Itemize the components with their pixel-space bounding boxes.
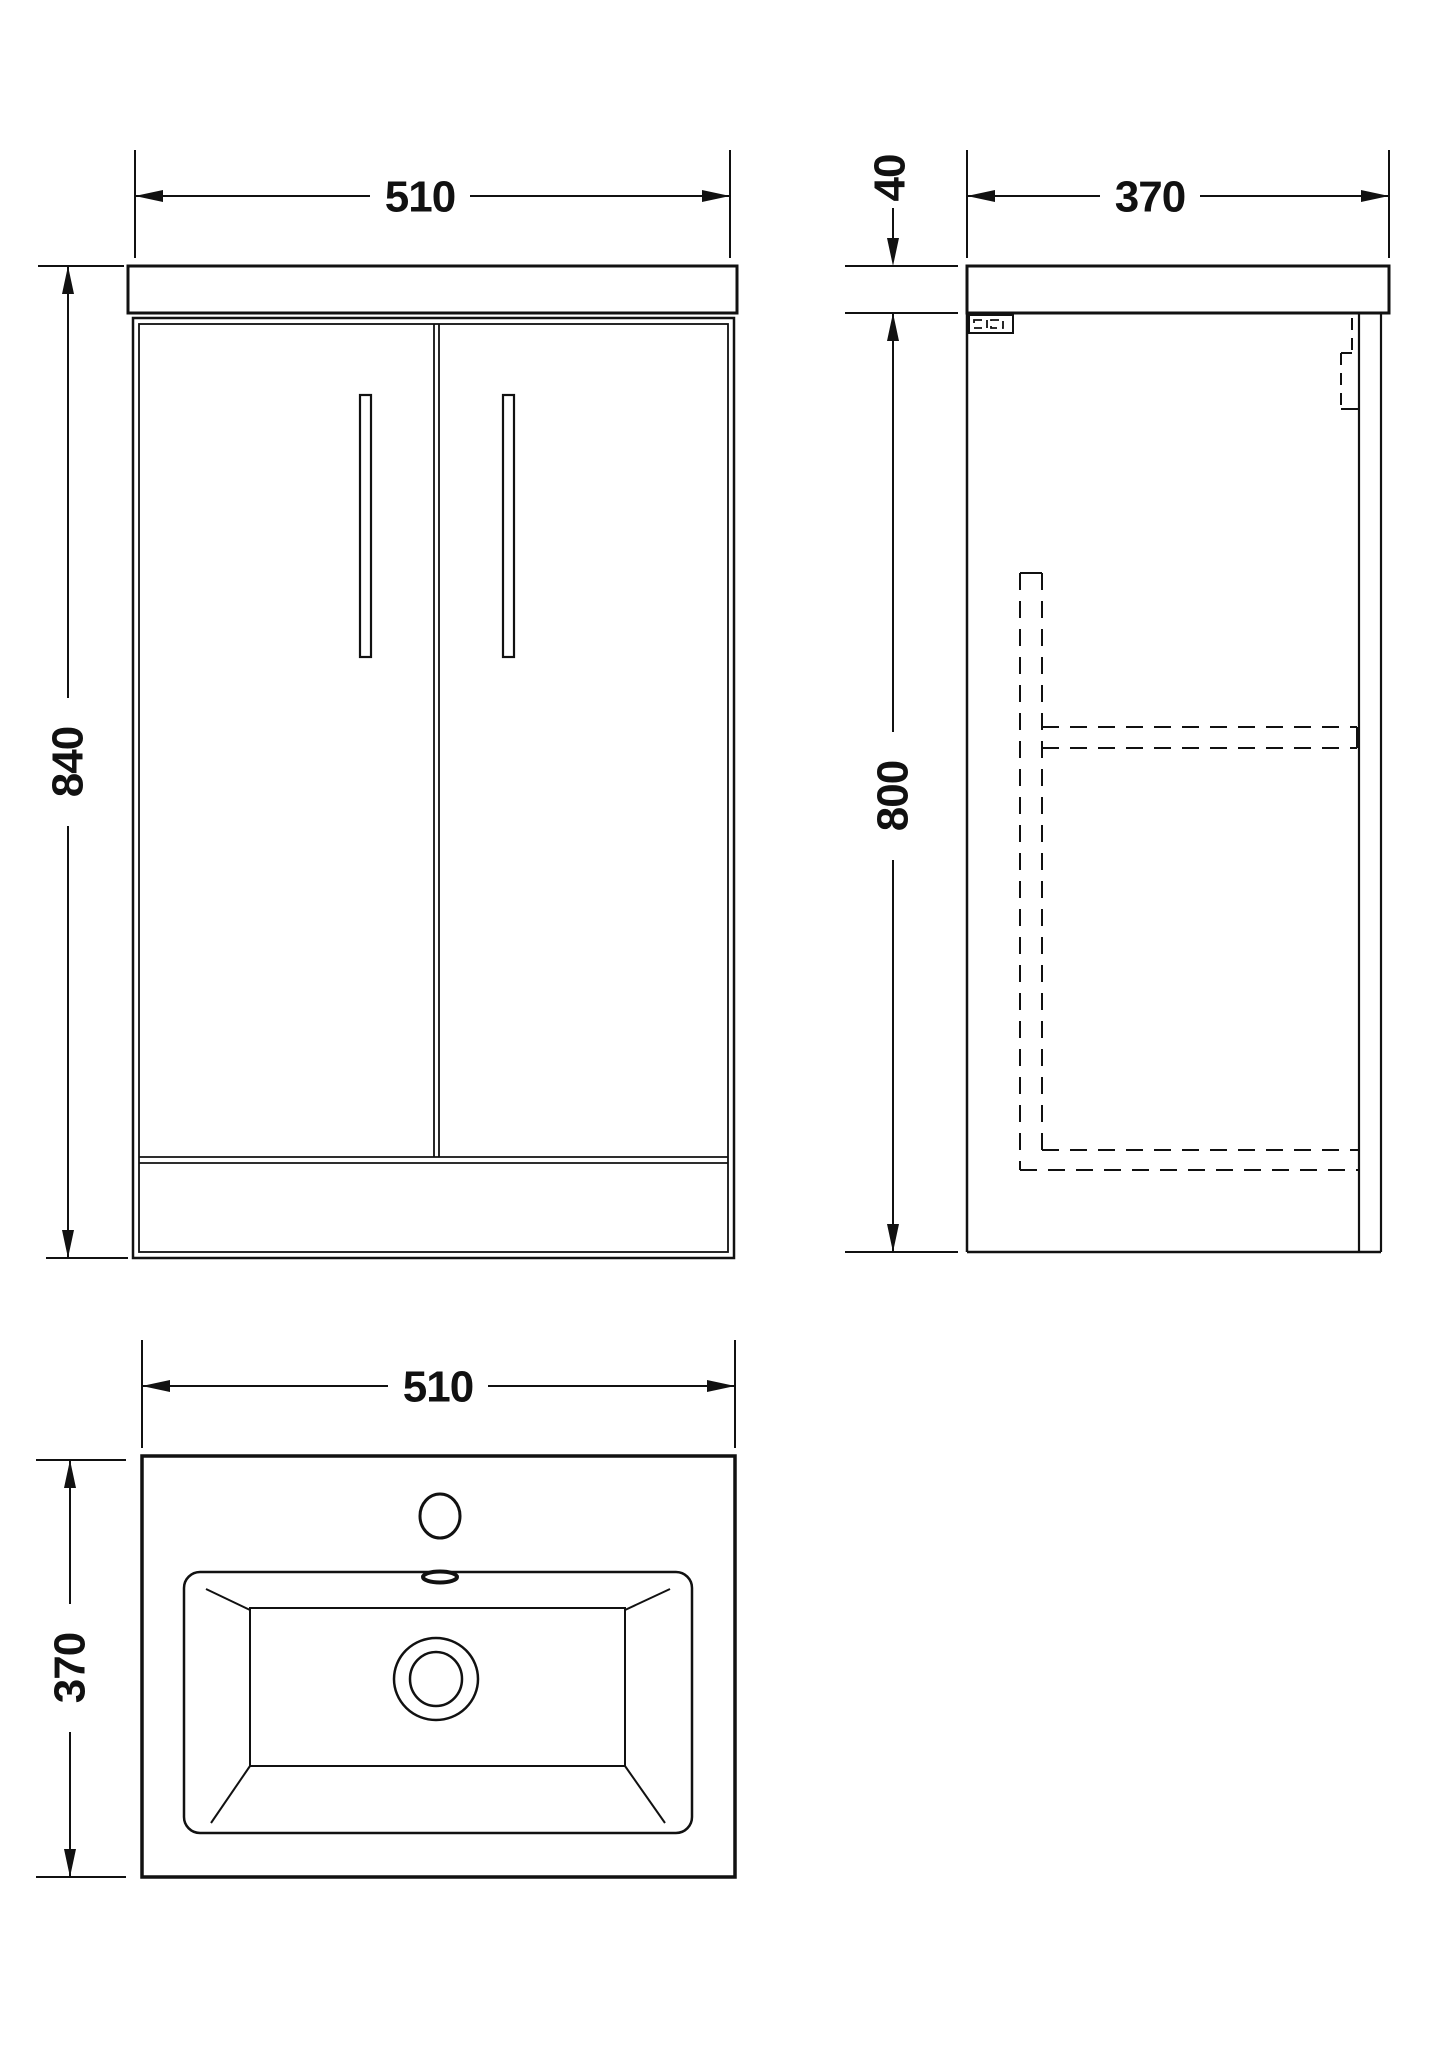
tap-hole xyxy=(420,1494,460,1538)
arrowhead-top xyxy=(64,1460,76,1488)
front-width-label: 510 xyxy=(385,173,455,222)
arrowhead-right xyxy=(702,190,730,202)
plan-width-dimension: 510 xyxy=(142,1340,735,1448)
arrowhead-bottom xyxy=(62,1230,74,1258)
plan-width-label: 510 xyxy=(403,1363,473,1412)
basin-bowl-inner xyxy=(250,1608,625,1766)
cabinet-height-label: 800 xyxy=(869,761,918,831)
clip-detail xyxy=(991,320,1003,328)
arrowhead-bottom xyxy=(887,1224,899,1252)
arrowhead-top xyxy=(887,313,899,341)
drain-inner-ring xyxy=(410,1652,462,1706)
front-height-label: 840 xyxy=(44,727,93,797)
side-view xyxy=(967,266,1389,1252)
front-worktop xyxy=(128,266,737,313)
basin-corner-line xyxy=(625,1766,665,1823)
technical-drawing-canvas: 510 840 xyxy=(0,0,1445,2045)
clip-detail xyxy=(974,320,987,328)
drain-outer-ring xyxy=(394,1638,478,1720)
front-right-door-handle xyxy=(503,395,514,657)
front-height-dimension: 840 xyxy=(38,266,128,1258)
overflow-slot xyxy=(423,1572,457,1583)
front-left-door-handle xyxy=(360,395,371,657)
basin-corner-line xyxy=(206,1589,250,1610)
front-view xyxy=(128,266,737,1258)
side-worktop xyxy=(967,266,1389,313)
arrowhead-right xyxy=(707,1380,735,1392)
worktop-thickness-dimension: 40 xyxy=(845,155,958,313)
arrowhead-left xyxy=(967,190,995,202)
arrowhead-down xyxy=(887,238,899,266)
arrowhead-right xyxy=(1361,190,1389,202)
vanity-unit-drawing: 510 840 xyxy=(0,0,1445,2045)
arrowhead-bottom xyxy=(64,1849,76,1877)
plan-depth-label: 370 xyxy=(46,1633,95,1703)
cabinet-height-dimension: 800 xyxy=(845,313,958,1252)
arrowhead-left xyxy=(135,190,163,202)
arrowhead-top xyxy=(62,266,74,294)
basin-corner-line xyxy=(211,1766,250,1823)
side-depth-dimension: 370 xyxy=(967,150,1389,258)
front-width-dimension: 510 xyxy=(135,150,730,258)
worktop-thickness-label: 40 xyxy=(866,155,915,202)
basin-rim xyxy=(184,1572,692,1833)
plan-depth-dimension: 370 xyxy=(36,1460,126,1877)
plan-worktop-outline xyxy=(142,1456,735,1877)
arrowhead-left xyxy=(142,1380,170,1392)
side-front-fixing-clip xyxy=(969,315,1013,333)
side-depth-label: 370 xyxy=(1115,173,1185,222)
basin-corner-line xyxy=(625,1589,670,1610)
plan-view xyxy=(142,1456,735,1877)
